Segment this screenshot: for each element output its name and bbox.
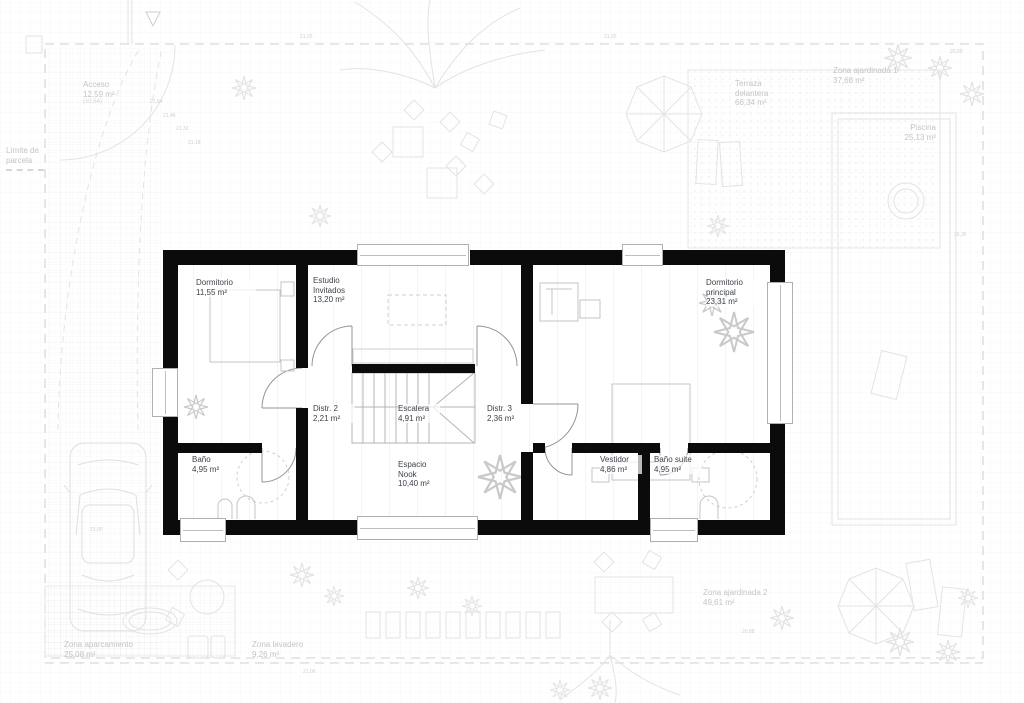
wall-segment [770,423,785,535]
corner-marks [163,250,785,535]
wall-segment [697,520,785,535]
wall-segment [521,265,533,404]
house-plan-drawing [0,0,1024,703]
floor-plan-canvas: Dormitorio11,55 m² Estudio Invitados13,2… [0,0,1024,703]
stair-void-dashed [388,295,446,325]
wall-segment [663,250,785,265]
wall-segment [352,364,475,373]
room-label-distribuidor-2: Distr. 22,21 m² [313,404,355,423]
wall-segment [572,443,660,453]
window [357,244,469,266]
room-label-distribuidor-3: Distr. 32,36 m² [487,404,529,423]
wall-segment [178,443,262,453]
room-label-dormitorio: Dormitorio11,55 m² [196,278,256,297]
room-label-bano-suite: Baño suite4,95 m² [654,455,702,474]
wall-segment [688,443,770,453]
wall-segment [296,408,308,520]
room-label-espacio-nook: Espacio Nook10,40 m² [398,460,436,489]
wall-segment [770,250,785,285]
sliding-glass-door [357,516,478,540]
wall-segment [163,416,178,535]
room-label-dormitorio-principal: Dormitorio principal23,31 m² [706,278,754,307]
window [650,518,698,542]
wall-segment [225,520,358,535]
wall-segment [533,443,545,453]
window [622,244,663,266]
window [180,518,226,542]
room-label-vestidor: Vestidor4,86 m² [600,455,642,474]
wall-segment [470,250,623,265]
window [767,282,793,424]
room-label-bano: Baño4,95 m² [192,455,232,474]
wall-segment [163,520,181,535]
wall-segment [163,250,178,370]
wall-segment [296,265,308,368]
wall-segment [477,520,651,535]
wall-segment [521,452,533,520]
room-label-escalera: Escalera4,91 m² [398,404,440,423]
indoor-plants [179,285,762,508]
window [152,368,178,417]
room-label-estudio-invitados: Estudio Invitados13,20 m² [313,276,353,305]
wall-segment [163,250,357,265]
